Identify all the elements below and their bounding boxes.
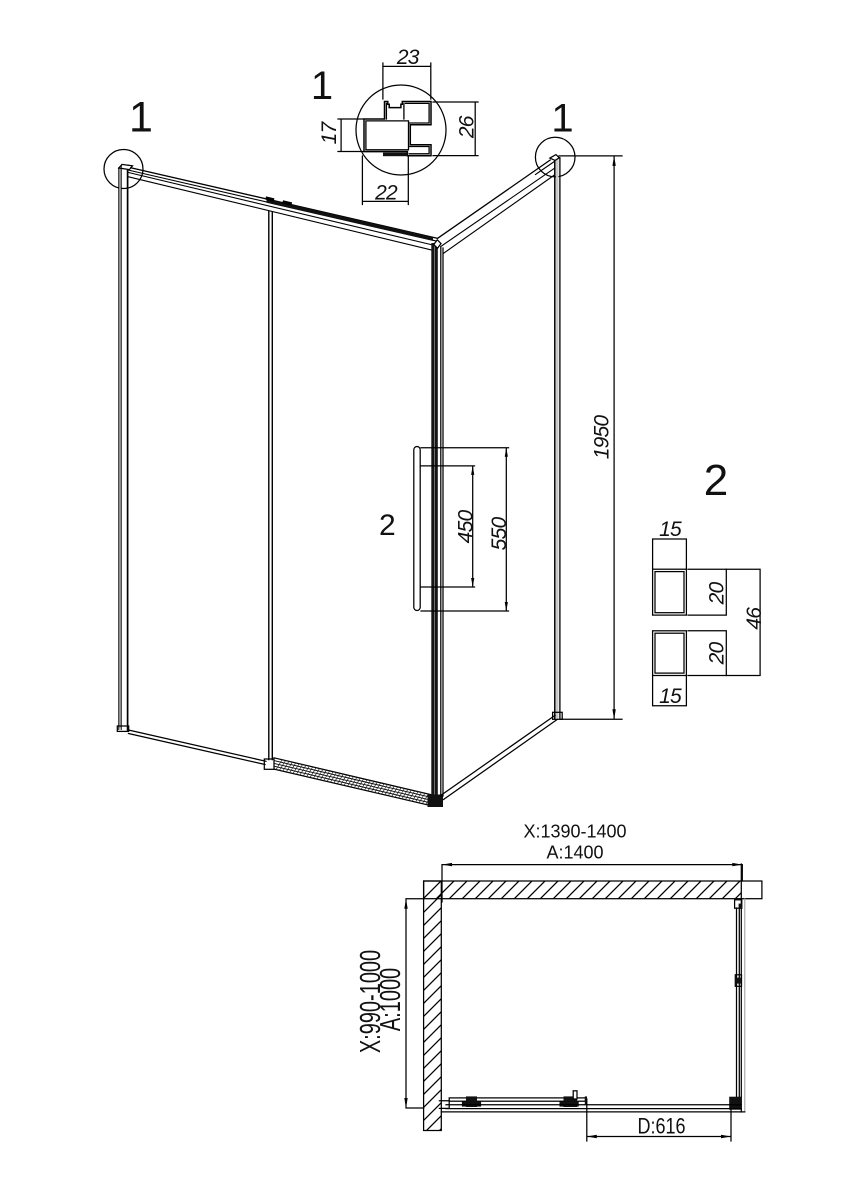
svg-text:20: 20: [706, 582, 729, 606]
svg-text:2: 2: [379, 509, 396, 542]
svg-text:20: 20: [706, 642, 729, 666]
svg-text:X:1390-1400: X:1390-1400: [523, 822, 626, 842]
svg-text:450: 450: [455, 510, 478, 544]
svg-text:550: 550: [488, 517, 511, 551]
svg-text:23: 23: [396, 46, 420, 69]
svg-text:1: 1: [129, 94, 153, 142]
svg-text:26: 26: [456, 115, 479, 139]
svg-text:D:616: D:616: [637, 1115, 685, 1139]
svg-text:A:1400: A:1400: [546, 843, 603, 863]
svg-text:1: 1: [311, 64, 333, 108]
svg-text:22: 22: [374, 182, 398, 205]
svg-text:1950: 1950: [591, 415, 614, 460]
svg-text:15: 15: [659, 685, 682, 708]
svg-text:15: 15: [659, 518, 682, 541]
svg-text:2: 2: [704, 456, 728, 505]
svg-text:46: 46: [743, 607, 766, 630]
svg-text:17: 17: [318, 121, 341, 145]
svg-text:1: 1: [551, 97, 573, 141]
svg-text:A:1000: A:1000: [374, 968, 407, 1031]
